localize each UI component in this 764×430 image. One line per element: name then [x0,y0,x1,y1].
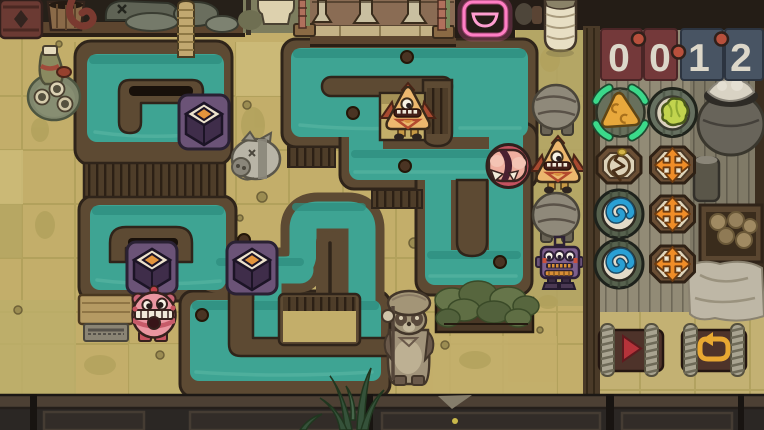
svg-text:0: 0 [608,37,630,80]
svg-text:0: 0 [649,37,671,80]
svg-text:1: 1 [688,37,710,80]
svg-text:2: 2 [730,37,752,80]
